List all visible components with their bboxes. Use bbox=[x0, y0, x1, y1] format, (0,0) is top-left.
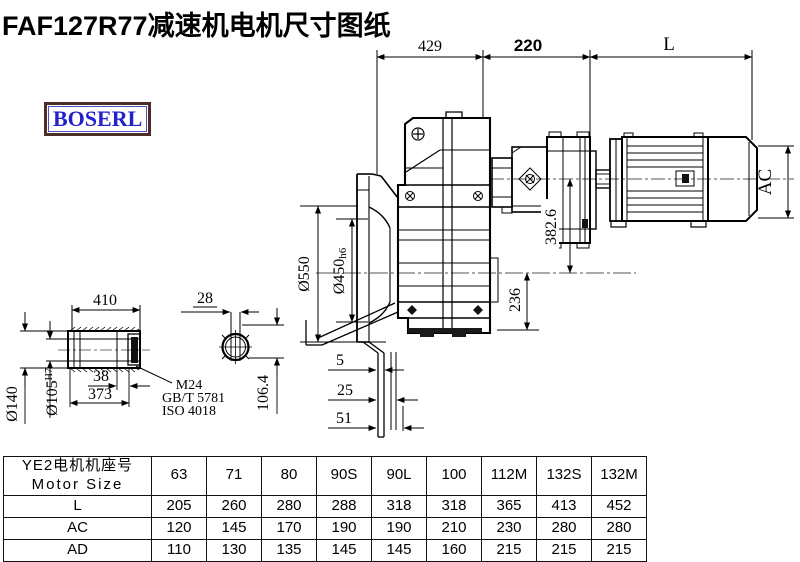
motor bbox=[610, 133, 757, 227]
dim-410: 410 bbox=[93, 292, 117, 309]
table-row-AD: AD 110 130 135 145 145 160 215 215 215 bbox=[4, 539, 647, 561]
col-header: 132M bbox=[592, 457, 647, 496]
table-cell: 170 bbox=[262, 517, 317, 539]
table-cell: 160 bbox=[427, 539, 482, 561]
col-header: 63 bbox=[152, 457, 207, 496]
top-dimensions bbox=[377, 50, 752, 174]
table-cell: 145 bbox=[207, 517, 262, 539]
table-cell: 120 bbox=[152, 517, 207, 539]
gearbox-housing bbox=[398, 112, 498, 337]
motor-size-table: YE2电机机座号 Motor Size 63 71 80 90S 90L 100… bbox=[3, 456, 647, 562]
table-cell: 210 bbox=[427, 517, 482, 539]
table-cell: 318 bbox=[427, 495, 482, 517]
table-cell: 110 bbox=[152, 539, 207, 561]
table-cell: 145 bbox=[317, 539, 372, 561]
table-cell: 365 bbox=[482, 495, 537, 517]
dim-429: 429 bbox=[418, 38, 442, 55]
table-cell: 280 bbox=[262, 495, 317, 517]
col-header: 90S bbox=[317, 457, 372, 496]
dim-25: 25 bbox=[337, 382, 353, 399]
motor-size-label-cn: YE2电机机座号 bbox=[4, 457, 151, 476]
table-cell: 135 bbox=[262, 539, 317, 561]
output-flange bbox=[306, 174, 403, 437]
table-cell: 190 bbox=[317, 517, 372, 539]
technical-drawing: 429 220 L bbox=[0, 0, 800, 455]
col-header: 132S bbox=[537, 457, 592, 496]
table-cell: 280 bbox=[537, 517, 592, 539]
table-cell: 145 bbox=[372, 539, 427, 561]
bolt-icon bbox=[406, 192, 483, 201]
label-std-iso: ISO 4018 bbox=[162, 404, 216, 419]
dim-bore-tol: H7 bbox=[44, 368, 55, 380]
bolt-icon bbox=[412, 128, 424, 140]
table-cell: 190 bbox=[372, 517, 427, 539]
motor-size-label-en: Motor Size bbox=[4, 476, 151, 495]
dim-bore-value: Ø105 bbox=[44, 380, 61, 416]
table-row-L: L 205 260 280 288 318 318 365 413 452 bbox=[4, 495, 647, 517]
dim-L: L bbox=[663, 34, 675, 55]
table-cell: 230 bbox=[482, 517, 537, 539]
dim-flange-fit-tol: h6 bbox=[337, 247, 349, 259]
row-label: AC bbox=[4, 517, 152, 539]
dim-flange-fit: Ø450h6 bbox=[331, 247, 349, 294]
dim-373: 373 bbox=[88, 386, 112, 403]
table-cell: 280 bbox=[592, 517, 647, 539]
table-header-row: YE2电机机座号 Motor Size 63 71 80 90S 90L 100… bbox=[4, 457, 647, 496]
table-cell: 205 bbox=[152, 495, 207, 517]
table-cell: 288 bbox=[317, 495, 372, 517]
dim-AC: AC bbox=[755, 169, 776, 195]
dim-236: 236 bbox=[507, 288, 524, 312]
table-cell: 130 bbox=[207, 539, 262, 561]
table-cell: 452 bbox=[592, 495, 647, 517]
dim-flange-od: Ø550 bbox=[296, 256, 313, 292]
row-label: L bbox=[4, 495, 152, 517]
row-label: AD bbox=[4, 539, 152, 561]
hollow-shaft-detail bbox=[20, 305, 172, 424]
table-row-AC: AC 120 145 170 190 190 210 230 280 280 bbox=[4, 517, 647, 539]
dim-382: 382.6 bbox=[543, 209, 560, 245]
bolt-icon bbox=[407, 305, 483, 315]
table-header-motor-size: YE2电机机座号 Motor Size bbox=[4, 457, 152, 496]
col-header: 90L bbox=[372, 457, 427, 496]
table-cell: 215 bbox=[537, 539, 592, 561]
col-header: 80 bbox=[262, 457, 317, 496]
table-cell: 413 bbox=[537, 495, 592, 517]
dim-28: 28 bbox=[197, 290, 213, 307]
dim-shaft-od: Ø140 bbox=[4, 386, 21, 422]
col-header: 100 bbox=[427, 457, 482, 496]
table-cell: 318 bbox=[372, 495, 427, 517]
table-cell: 215 bbox=[482, 539, 537, 561]
table-cell: 260 bbox=[207, 495, 262, 517]
dim-flange-fit-value: Ø450 bbox=[331, 259, 348, 295]
dim-5: 5 bbox=[336, 352, 344, 369]
dim-51: 51 bbox=[336, 410, 352, 427]
dim-38: 38 bbox=[93, 368, 109, 385]
dim-106: 106.4 bbox=[255, 375, 272, 411]
dim-220: 220 bbox=[514, 36, 542, 55]
table-cell: 215 bbox=[592, 539, 647, 561]
dim-bore: Ø105H7 bbox=[44, 368, 61, 416]
col-header: 112M bbox=[482, 457, 537, 496]
col-header: 71 bbox=[207, 457, 262, 496]
